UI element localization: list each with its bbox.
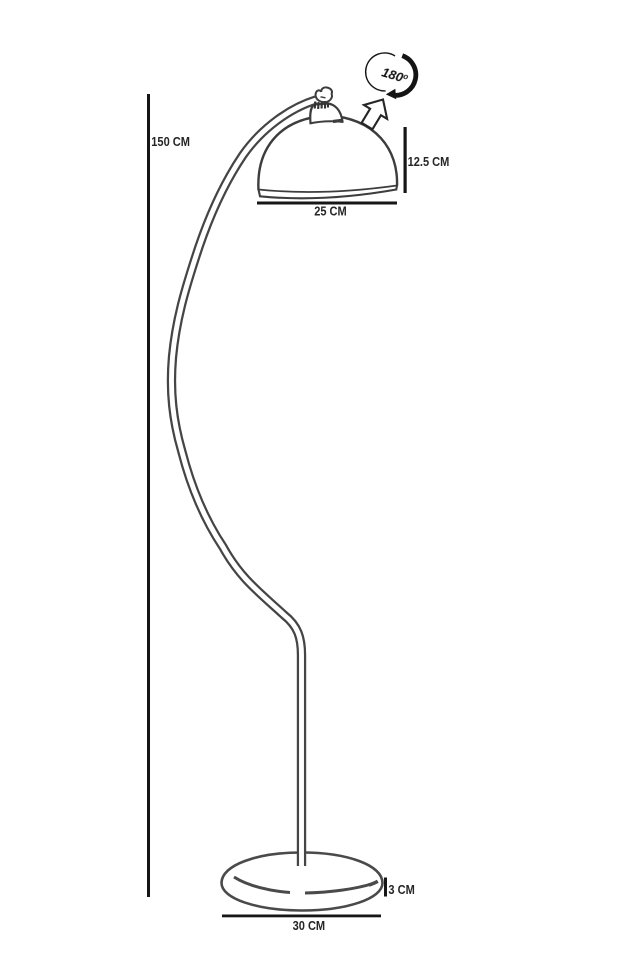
svg-text:3 CM: 3 CM (388, 882, 414, 897)
svg-text:30 CM: 30 CM (293, 918, 326, 933)
svg-text:150 CM: 150 CM (151, 134, 190, 149)
svg-text:12.5 CM: 12.5 CM (408, 154, 450, 169)
svg-text:25 CM: 25 CM (314, 204, 347, 219)
